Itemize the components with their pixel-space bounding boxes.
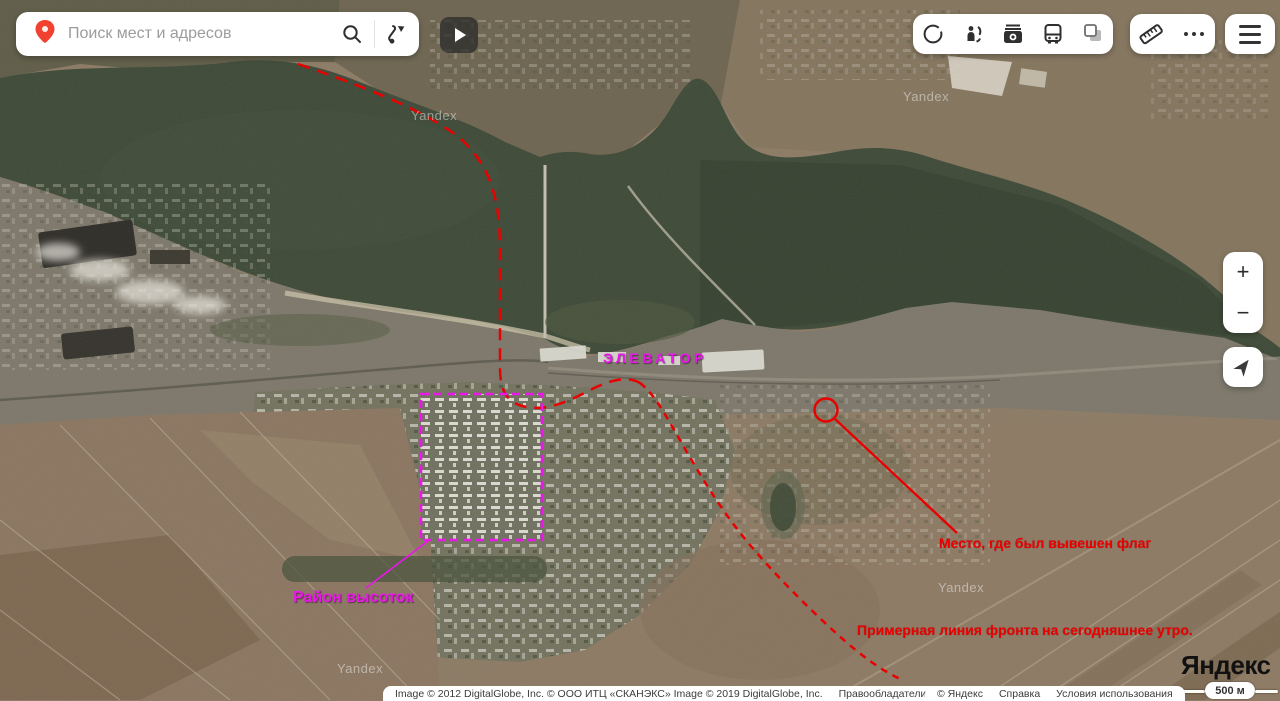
layers-button[interactable]: [1073, 14, 1113, 54]
hamburger-icon: [1239, 25, 1261, 44]
layers-icon: [1081, 22, 1105, 46]
yandex-attribution-bar: © Яндекс Справка Условия использования: [925, 686, 1185, 701]
help-link[interactable]: Справка: [999, 688, 1040, 700]
panoramas-button[interactable]: [913, 14, 953, 54]
search-input[interactable]: [66, 24, 330, 44]
locate-me-button[interactable]: [1223, 347, 1263, 387]
transport-icon: [1041, 22, 1065, 46]
zoom-controls: + −: [1223, 252, 1263, 333]
ellipsis-icon: [1184, 32, 1204, 36]
imagery-attribution-bar: Image © 2012 DigitalGlobe, Inc. © ООО ИТ…: [383, 686, 938, 701]
search-button[interactable]: [330, 12, 374, 56]
tools-toolbar: [1130, 14, 1215, 54]
scale-line-left: [1183, 690, 1205, 693]
scale-line-right: [1255, 690, 1278, 693]
panoramas-icon: [921, 22, 945, 46]
menu-button[interactable]: [1225, 14, 1275, 54]
zoom-out-button[interactable]: −: [1223, 293, 1263, 334]
play-arrow-icon: [455, 28, 466, 42]
mirrors-button[interactable]: [953, 14, 993, 54]
yandex-maps-ui: Yandex Yandex Yandex Yandex ЭЛЕВАТОР Рай…: [0, 0, 1280, 701]
terms-link[interactable]: Условия использования: [1056, 688, 1173, 700]
routes-icon: [385, 22, 409, 46]
transport-button[interactable]: [1033, 14, 1073, 54]
imagery-copyright-text: Image © 2012 DigitalGlobe, Inc. © ООО ИТ…: [395, 688, 823, 700]
expand-panel-button[interactable]: [440, 17, 478, 53]
search-icon: [341, 23, 363, 45]
yandex-logo[interactable]: Яндекс: [1181, 650, 1271, 681]
mirrors-icon: [961, 22, 985, 46]
scale-value: 500 м: [1205, 682, 1255, 699]
satellite-map-canvas[interactable]: [0, 0, 1280, 701]
rights-holders-link[interactable]: Правообладатели: [839, 688, 927, 700]
ruler-button[interactable]: [1131, 14, 1171, 54]
map-layers-toolbar: [913, 14, 1113, 54]
search-bar: [16, 12, 419, 56]
photos-button[interactable]: [993, 14, 1033, 54]
zoom-in-button[interactable]: +: [1223, 252, 1263, 293]
yandex-copyright-link[interactable]: © Яндекс: [937, 688, 983, 700]
location-arrow-icon: [1232, 356, 1254, 378]
more-tools-button[interactable]: [1174, 14, 1214, 54]
satellite-noise: [0, 0, 1280, 701]
map-scale: 500 м: [1183, 682, 1278, 700]
routes-button[interactable]: [375, 12, 419, 56]
photos-icon: [1001, 22, 1025, 46]
location-pin-icon: [32, 19, 58, 49]
ruler-icon: [1138, 21, 1164, 47]
